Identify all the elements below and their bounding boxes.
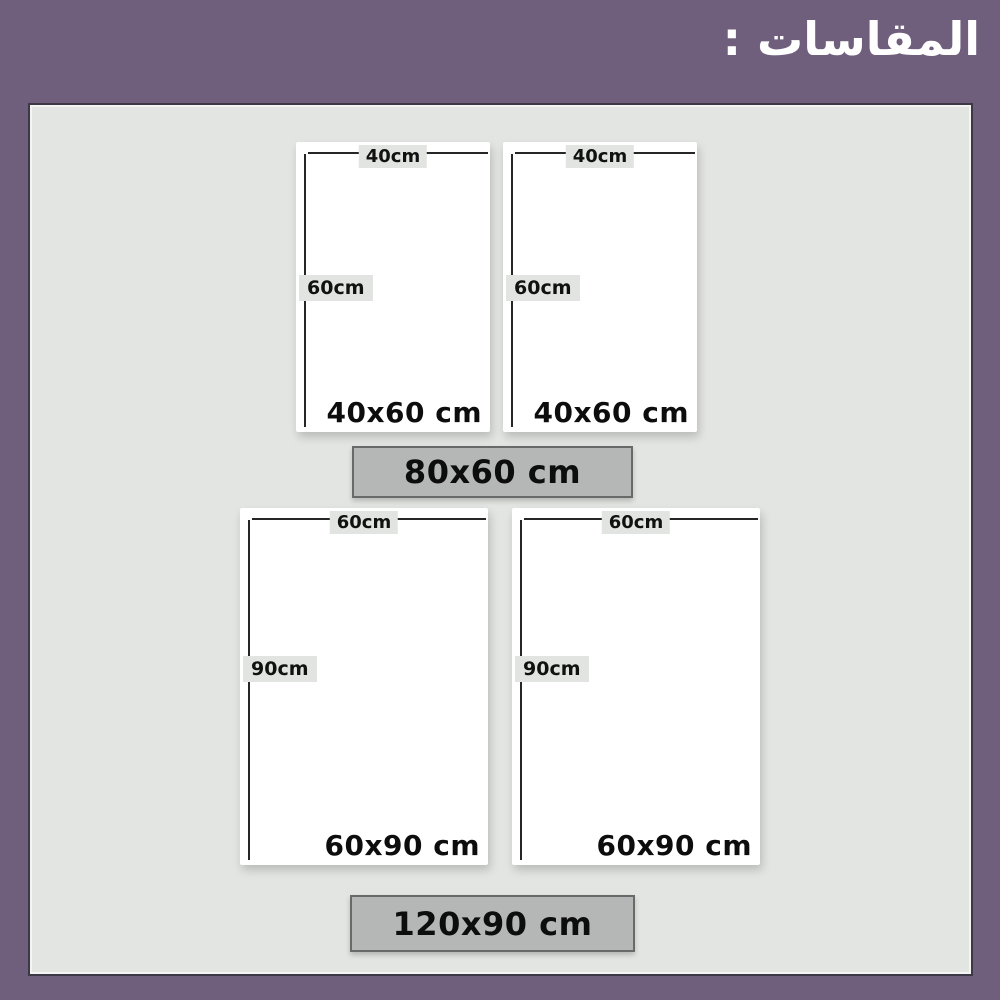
height-label: 60cm xyxy=(299,275,373,301)
size-panel-60x90-left: 60cm 90cm 60x90 cm xyxy=(240,508,488,865)
height-label: 90cm xyxy=(515,656,589,682)
size-label: 40x60 cm xyxy=(533,396,689,429)
height-label: 60cm xyxy=(506,275,580,301)
width-label: 60cm xyxy=(330,511,398,534)
width-label: 60cm xyxy=(602,511,670,534)
size-panel-40x60-right: 40cm 60cm 40x60 cm xyxy=(503,142,697,432)
width-label: 40cm xyxy=(566,145,634,168)
page-title: المقاسات : xyxy=(723,8,980,70)
width-label: 40cm xyxy=(359,145,427,168)
combined-size-banner-120x90: 120x90 cm xyxy=(350,895,635,952)
combined-size-banner-80x60: 80x60 cm xyxy=(352,446,633,498)
height-dimension-line xyxy=(520,520,522,860)
height-label: 90cm xyxy=(243,656,317,682)
size-label: 40x60 cm xyxy=(326,396,482,429)
height-dimension-line xyxy=(248,520,250,860)
size-panel-40x60-left: 40cm 60cm 40x60 cm xyxy=(296,142,490,432)
board xyxy=(28,103,973,976)
size-label: 60x90 cm xyxy=(324,829,480,862)
size-guide-image: المقاسات : 40cm 60cm 40x60 cm 40cm 60cm … xyxy=(0,0,1000,1000)
size-label: 60x90 cm xyxy=(596,829,752,862)
size-panel-60x90-right: 60cm 90cm 60x90 cm xyxy=(512,508,760,865)
